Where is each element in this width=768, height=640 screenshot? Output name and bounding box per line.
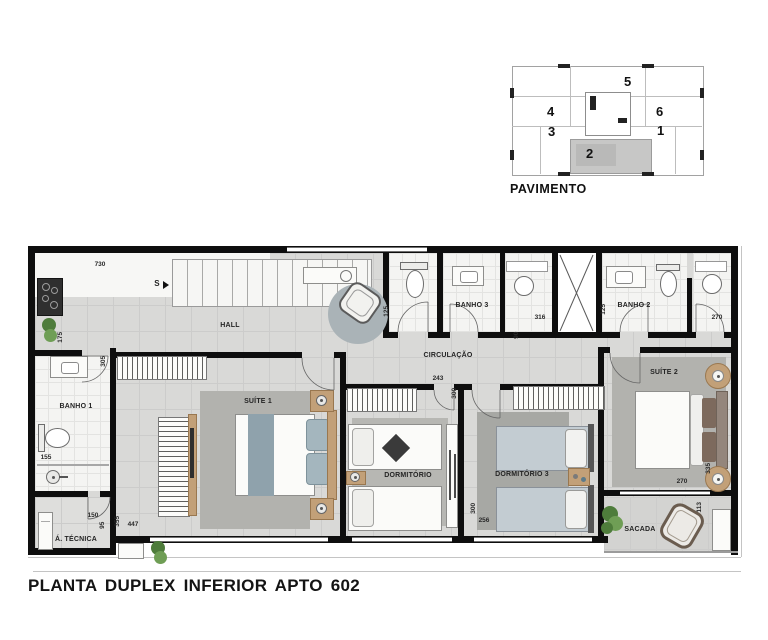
keyplan-core-mark (618, 118, 627, 123)
chair-seat-line (665, 508, 700, 544)
wall-dorm-dorm3 (458, 384, 464, 542)
dim-nook-width: 270 (706, 315, 728, 322)
keyplan-line (570, 66, 571, 126)
stairs-direction-label: S (150, 280, 164, 289)
dim-suite1-width: 447 (123, 522, 143, 529)
keyplan-tick (700, 88, 704, 98)
window-suite1 (150, 537, 328, 542)
dorm-wardrobe (347, 388, 417, 412)
window-suite2-sacada (620, 491, 710, 495)
suite2-brown-pillow (702, 398, 716, 428)
lavabo-toilet-tank (400, 262, 428, 270)
keyplan-caption: PAVIMENTO (510, 182, 587, 196)
wall-left (28, 246, 35, 555)
dim-suite1-top: 305 (101, 352, 108, 370)
banho1-sink-basin (61, 362, 79, 374)
floor-banho3 (443, 253, 500, 332)
suite1-lamp (316, 395, 327, 406)
lamp-dot (354, 476, 357, 479)
dim-dorm-height: 300 (452, 384, 459, 402)
dim-dorm-width: 243 (428, 376, 448, 383)
label-hall: HALL (210, 322, 250, 330)
banho2-sink-basin (615, 271, 633, 284)
keyplan-tick (558, 172, 570, 176)
dim-suite2-height: 335 (706, 459, 713, 477)
suite1-bed-mattress (235, 414, 315, 496)
dim-banho2-width: 125 (601, 300, 608, 318)
nightstand-item (581, 477, 586, 482)
wall-circ-top-c (478, 332, 602, 338)
dorm3-nightstand (568, 468, 590, 486)
cooktop-burner (50, 301, 58, 309)
window-dorm (352, 537, 452, 542)
label-banho2: BANHO 2 (608, 302, 660, 310)
dim-kitchen-height: 175 (58, 328, 65, 346)
banho1-toilet-tank (38, 424, 45, 452)
wall-suite2-top-b (640, 347, 738, 353)
lamp-dot (717, 375, 720, 378)
suite1-wardrobe (117, 356, 207, 380)
keyplan-unit-6: 6 (656, 104, 663, 119)
dorm-lamp (350, 472, 360, 482)
sacada-edge-line (604, 551, 738, 553)
suite2-brown-pillow (702, 432, 716, 462)
wall-banho2-nook (687, 278, 692, 335)
keyplan-line (540, 126, 541, 174)
dorm3-bed1-headboard (588, 424, 594, 472)
cooktop (37, 278, 63, 316)
niche-nook (695, 261, 727, 272)
dorm-sliding-bar (449, 450, 451, 500)
dim-lavabo-width: 125 (384, 302, 391, 320)
dorm3-bed1-pillow (565, 429, 587, 468)
keyplan: 5 4 6 3 1 2 PAVIMENTO (500, 58, 710, 198)
label-dormitorio3: DORMITÓRIO 3 (490, 471, 554, 479)
dim-suite1-height: 355 (115, 513, 122, 529)
wall-circ-top-b (428, 332, 450, 338)
keyplan-tick (642, 64, 654, 68)
dorm3-bed2-pillow (565, 490, 587, 529)
wall-dorm3-top-a (464, 384, 472, 390)
suite2-round-nightstand (705, 363, 731, 389)
dim-circulacao-width: 90 (514, 327, 521, 343)
cooktop-burner (51, 287, 58, 294)
wall-circ-top-a (383, 332, 398, 338)
window-dorm3 (474, 537, 592, 542)
page-title: PLANTA DUPLEX INFERIOR APTO 602 (28, 576, 360, 596)
wall-suite1-dorm (340, 352, 346, 542)
shower-head-dot (52, 476, 55, 479)
nightstand-item (573, 474, 578, 479)
dorm3-bed2-headboard (588, 485, 594, 533)
wall-atecnica-top-b (100, 491, 116, 497)
suite2-headboard (716, 391, 728, 469)
sink-round-icon (340, 270, 352, 282)
keyplan-unit-4: 4 (547, 104, 554, 119)
banho3-sink-counter (452, 266, 484, 286)
plant-bottom (148, 540, 170, 566)
lamp-dot (320, 507, 323, 510)
label-dormitorio: DORMITÓRIO (374, 472, 442, 480)
banho3-pedestal-sink (514, 276, 534, 296)
keyplan-unit-3: 3 (548, 124, 555, 139)
banho1-shower-head (46, 470, 60, 484)
wall-right (731, 246, 738, 555)
wall-shaft-banho2 (596, 252, 602, 338)
plant-leaf (44, 329, 57, 342)
label-sacada: SACADA (612, 526, 668, 534)
plant-leaf (154, 551, 167, 564)
keyplan-line (675, 126, 676, 174)
plant-sacada (600, 504, 626, 540)
banho1-toilet-bowl (45, 428, 70, 448)
dim-atecnica-height: 95 (100, 517, 107, 533)
keyplan-line (645, 66, 646, 126)
label-suite1: SUÍTE 1 (232, 398, 284, 406)
keyplan-unit-2: 2 (586, 146, 593, 161)
label-area-tecnica: Á. TÉCNICA (48, 536, 104, 544)
keyplan-tick (558, 64, 570, 68)
suite1-lamp (316, 503, 327, 514)
dorm-bed1-pillow (352, 428, 374, 466)
cooktop-burner (42, 283, 50, 291)
keyplan-core-mark (590, 96, 596, 110)
plan-projection-line-right (741, 246, 742, 557)
atecnica-tank-line (41, 521, 50, 522)
keyplan-unit-5: 5 (624, 74, 631, 89)
cooktop-burner (42, 295, 49, 302)
banho2-sink-counter (606, 266, 646, 288)
dim-kitchen-width: 730 (88, 262, 112, 269)
keyplan-unit-1: 1 (657, 123, 664, 138)
dim-dorm3-height: 300 (471, 499, 478, 517)
label-suite2: SUÍTE 2 (638, 369, 690, 377)
lamp-dot (717, 478, 720, 481)
wall-suite1-top-b (334, 352, 346, 358)
dim-banho1-width: 155 (36, 455, 56, 462)
armchair-seat-line (344, 287, 376, 319)
wall-lavabo-banho3 (437, 252, 443, 332)
lavabo-toilet-bowl (406, 270, 424, 298)
label-banho3: BANHO 3 (442, 302, 502, 310)
banho2-toilet-tank (656, 264, 680, 271)
wall-atecnica-top-a (28, 491, 88, 497)
label-banho1: BANHO 1 (50, 403, 102, 411)
banho1-sink-counter (50, 356, 88, 378)
lamp-dot (320, 399, 323, 402)
dorm-sliding-bar (454, 454, 456, 498)
niche-banho3 (506, 261, 548, 272)
shower-arm (59, 476, 68, 478)
exterior-unit-box (118, 543, 144, 559)
atecnica-tank (38, 512, 53, 550)
keyplan-tick (510, 150, 514, 160)
banho3-sink-basin (460, 271, 478, 283)
suite1-closet (158, 417, 190, 517)
banho1-shower-divider (37, 464, 109, 466)
label-circulacao: CIRCULAÇÃO (408, 352, 488, 360)
dim-suite2-width: 270 (672, 479, 692, 486)
suite1-bed-runner (248, 414, 274, 496)
dim-sacada-height: 113 (697, 498, 704, 516)
wall-shower-shaft (552, 252, 558, 338)
window-top (287, 247, 427, 252)
dim-dorm3-width: 256 (474, 518, 494, 525)
nook-pedestal-sink (702, 274, 722, 294)
keyplan-unit2-inner (576, 144, 616, 166)
keyplan-tick (642, 172, 654, 176)
keyplan-tick (510, 88, 514, 98)
dorm3-wardrobe (513, 386, 605, 410)
keyplan-tick (700, 150, 704, 160)
suite1-headboard (327, 410, 337, 500)
wall-banho2-bottom-b (648, 332, 696, 338)
dim-banho3-width: 316 (530, 315, 550, 322)
wall-banho3-shower (500, 252, 505, 338)
banho2-toilet-bowl (660, 271, 677, 297)
stairs-s-text: S (154, 279, 160, 288)
sacada-bench (712, 509, 731, 551)
wall-banho2-bottom-c (724, 332, 738, 338)
shaft-box (558, 253, 596, 332)
wall-suite2-top-a (604, 347, 610, 353)
dorm-bed2-pillow (352, 489, 374, 527)
wall-banho2-bottom-a (602, 332, 620, 338)
kitchen-counter-sink (303, 267, 357, 284)
suite1-tv (190, 428, 194, 478)
title-divider-line (33, 571, 741, 572)
floorplan-page: 5 4 6 3 1 2 PAVIMENTO (0, 0, 768, 640)
dorm-sliding-door (446, 424, 458, 528)
suite2-bed-mattress (635, 391, 690, 469)
